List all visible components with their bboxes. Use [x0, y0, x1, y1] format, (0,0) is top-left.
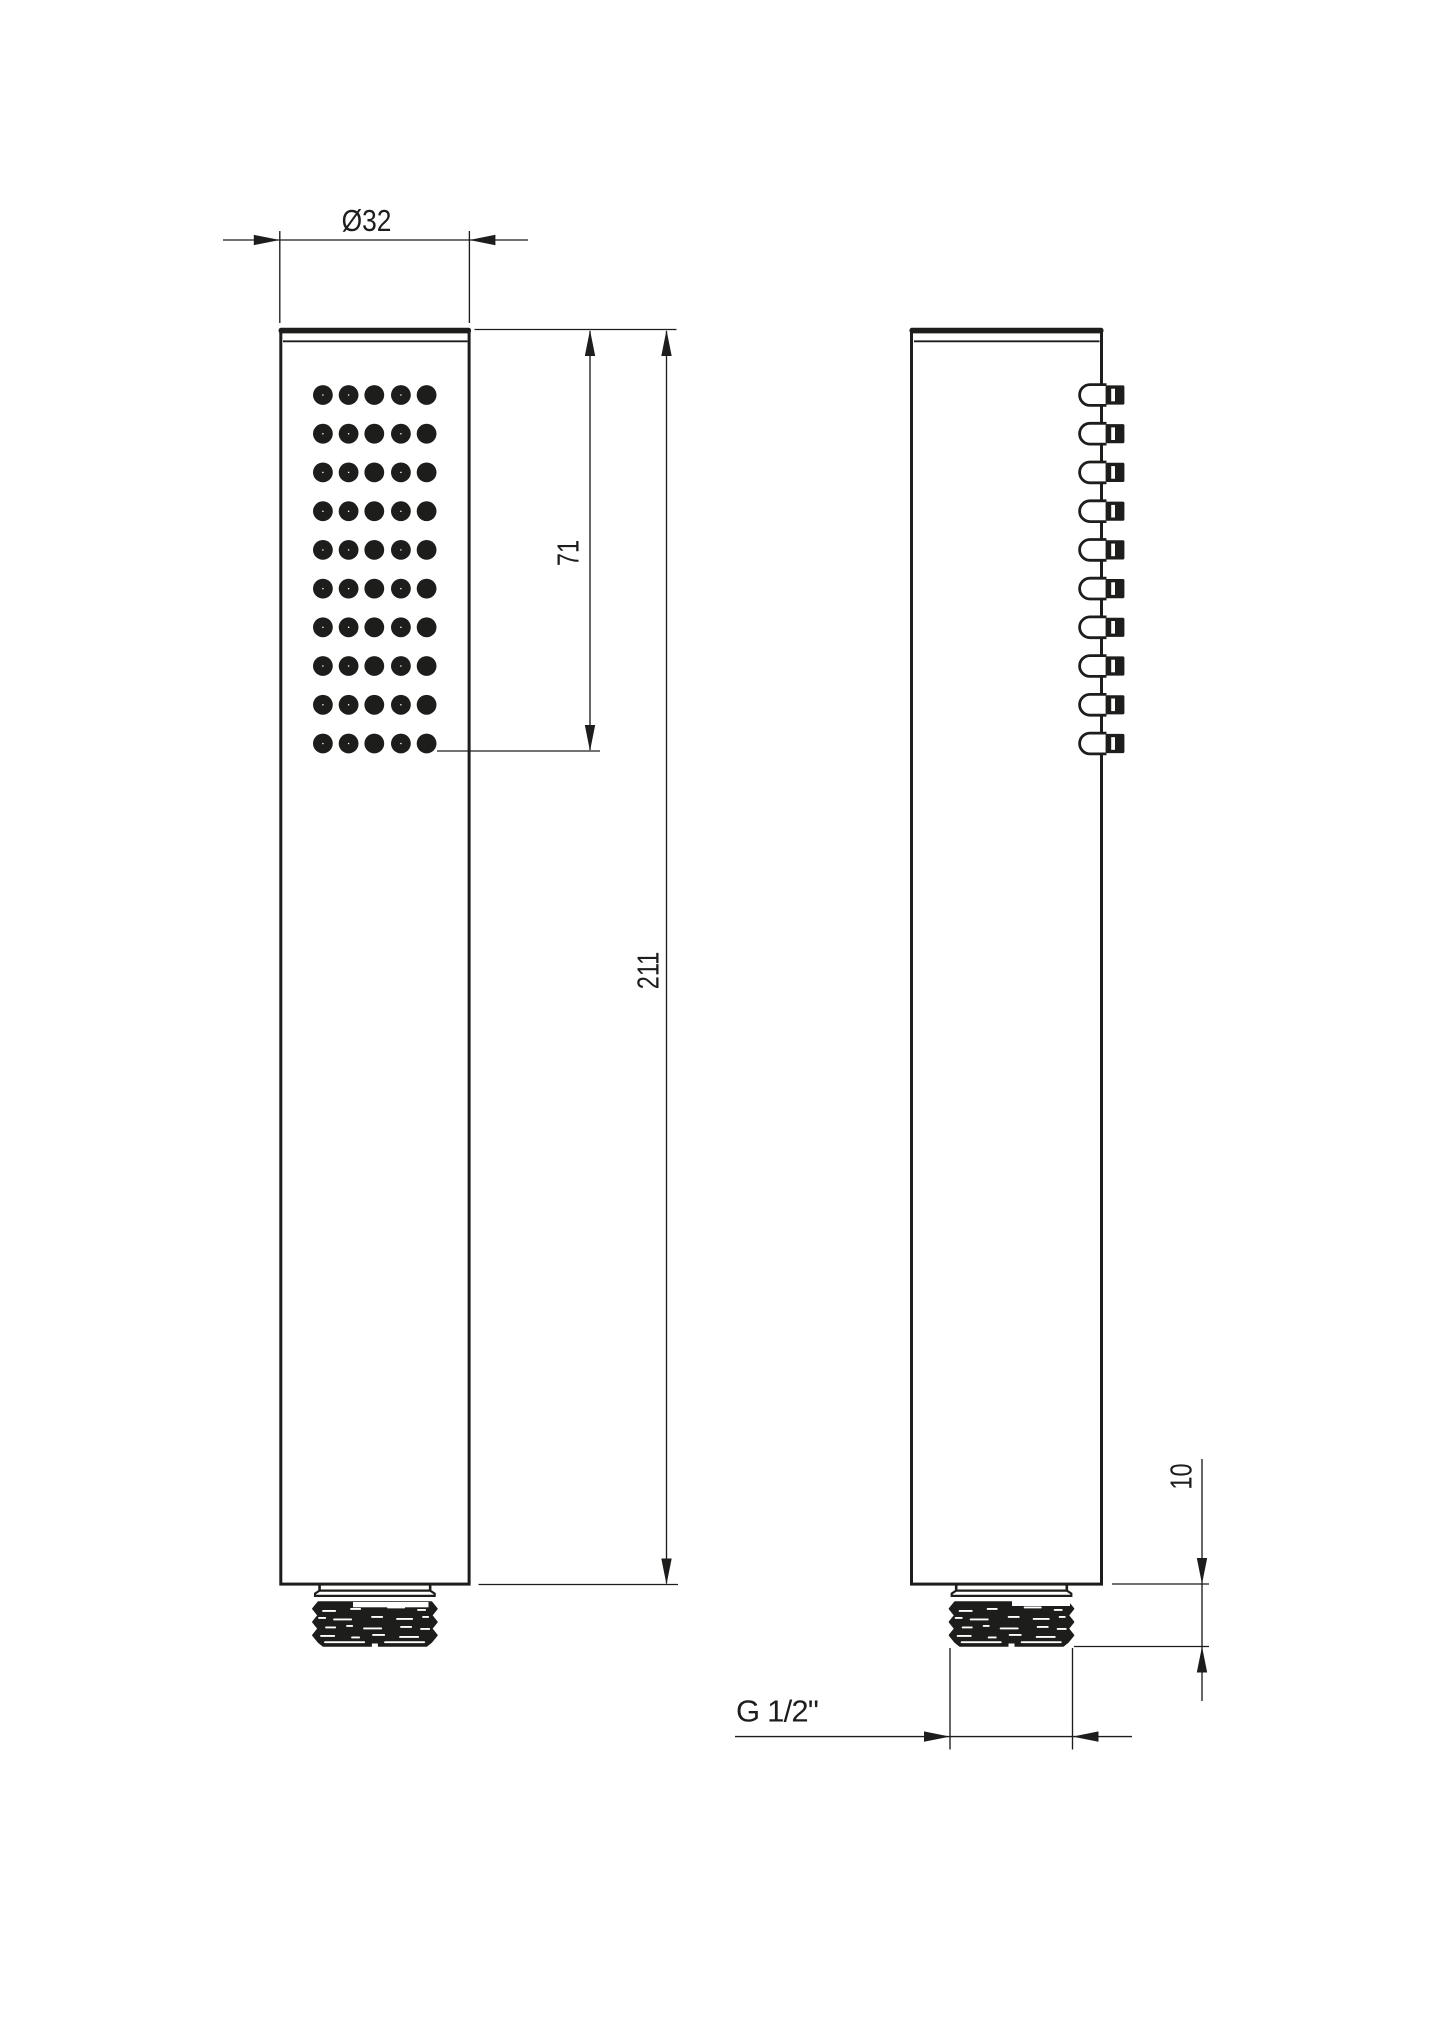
svg-text:10: 10 [1163, 1463, 1198, 1489]
svg-text:G 1/2": G 1/2" [736, 1694, 818, 1729]
svg-text:211: 211 [630, 952, 665, 990]
svg-text:Ø32: Ø32 [342, 204, 392, 238]
svg-text:71: 71 [550, 540, 585, 566]
